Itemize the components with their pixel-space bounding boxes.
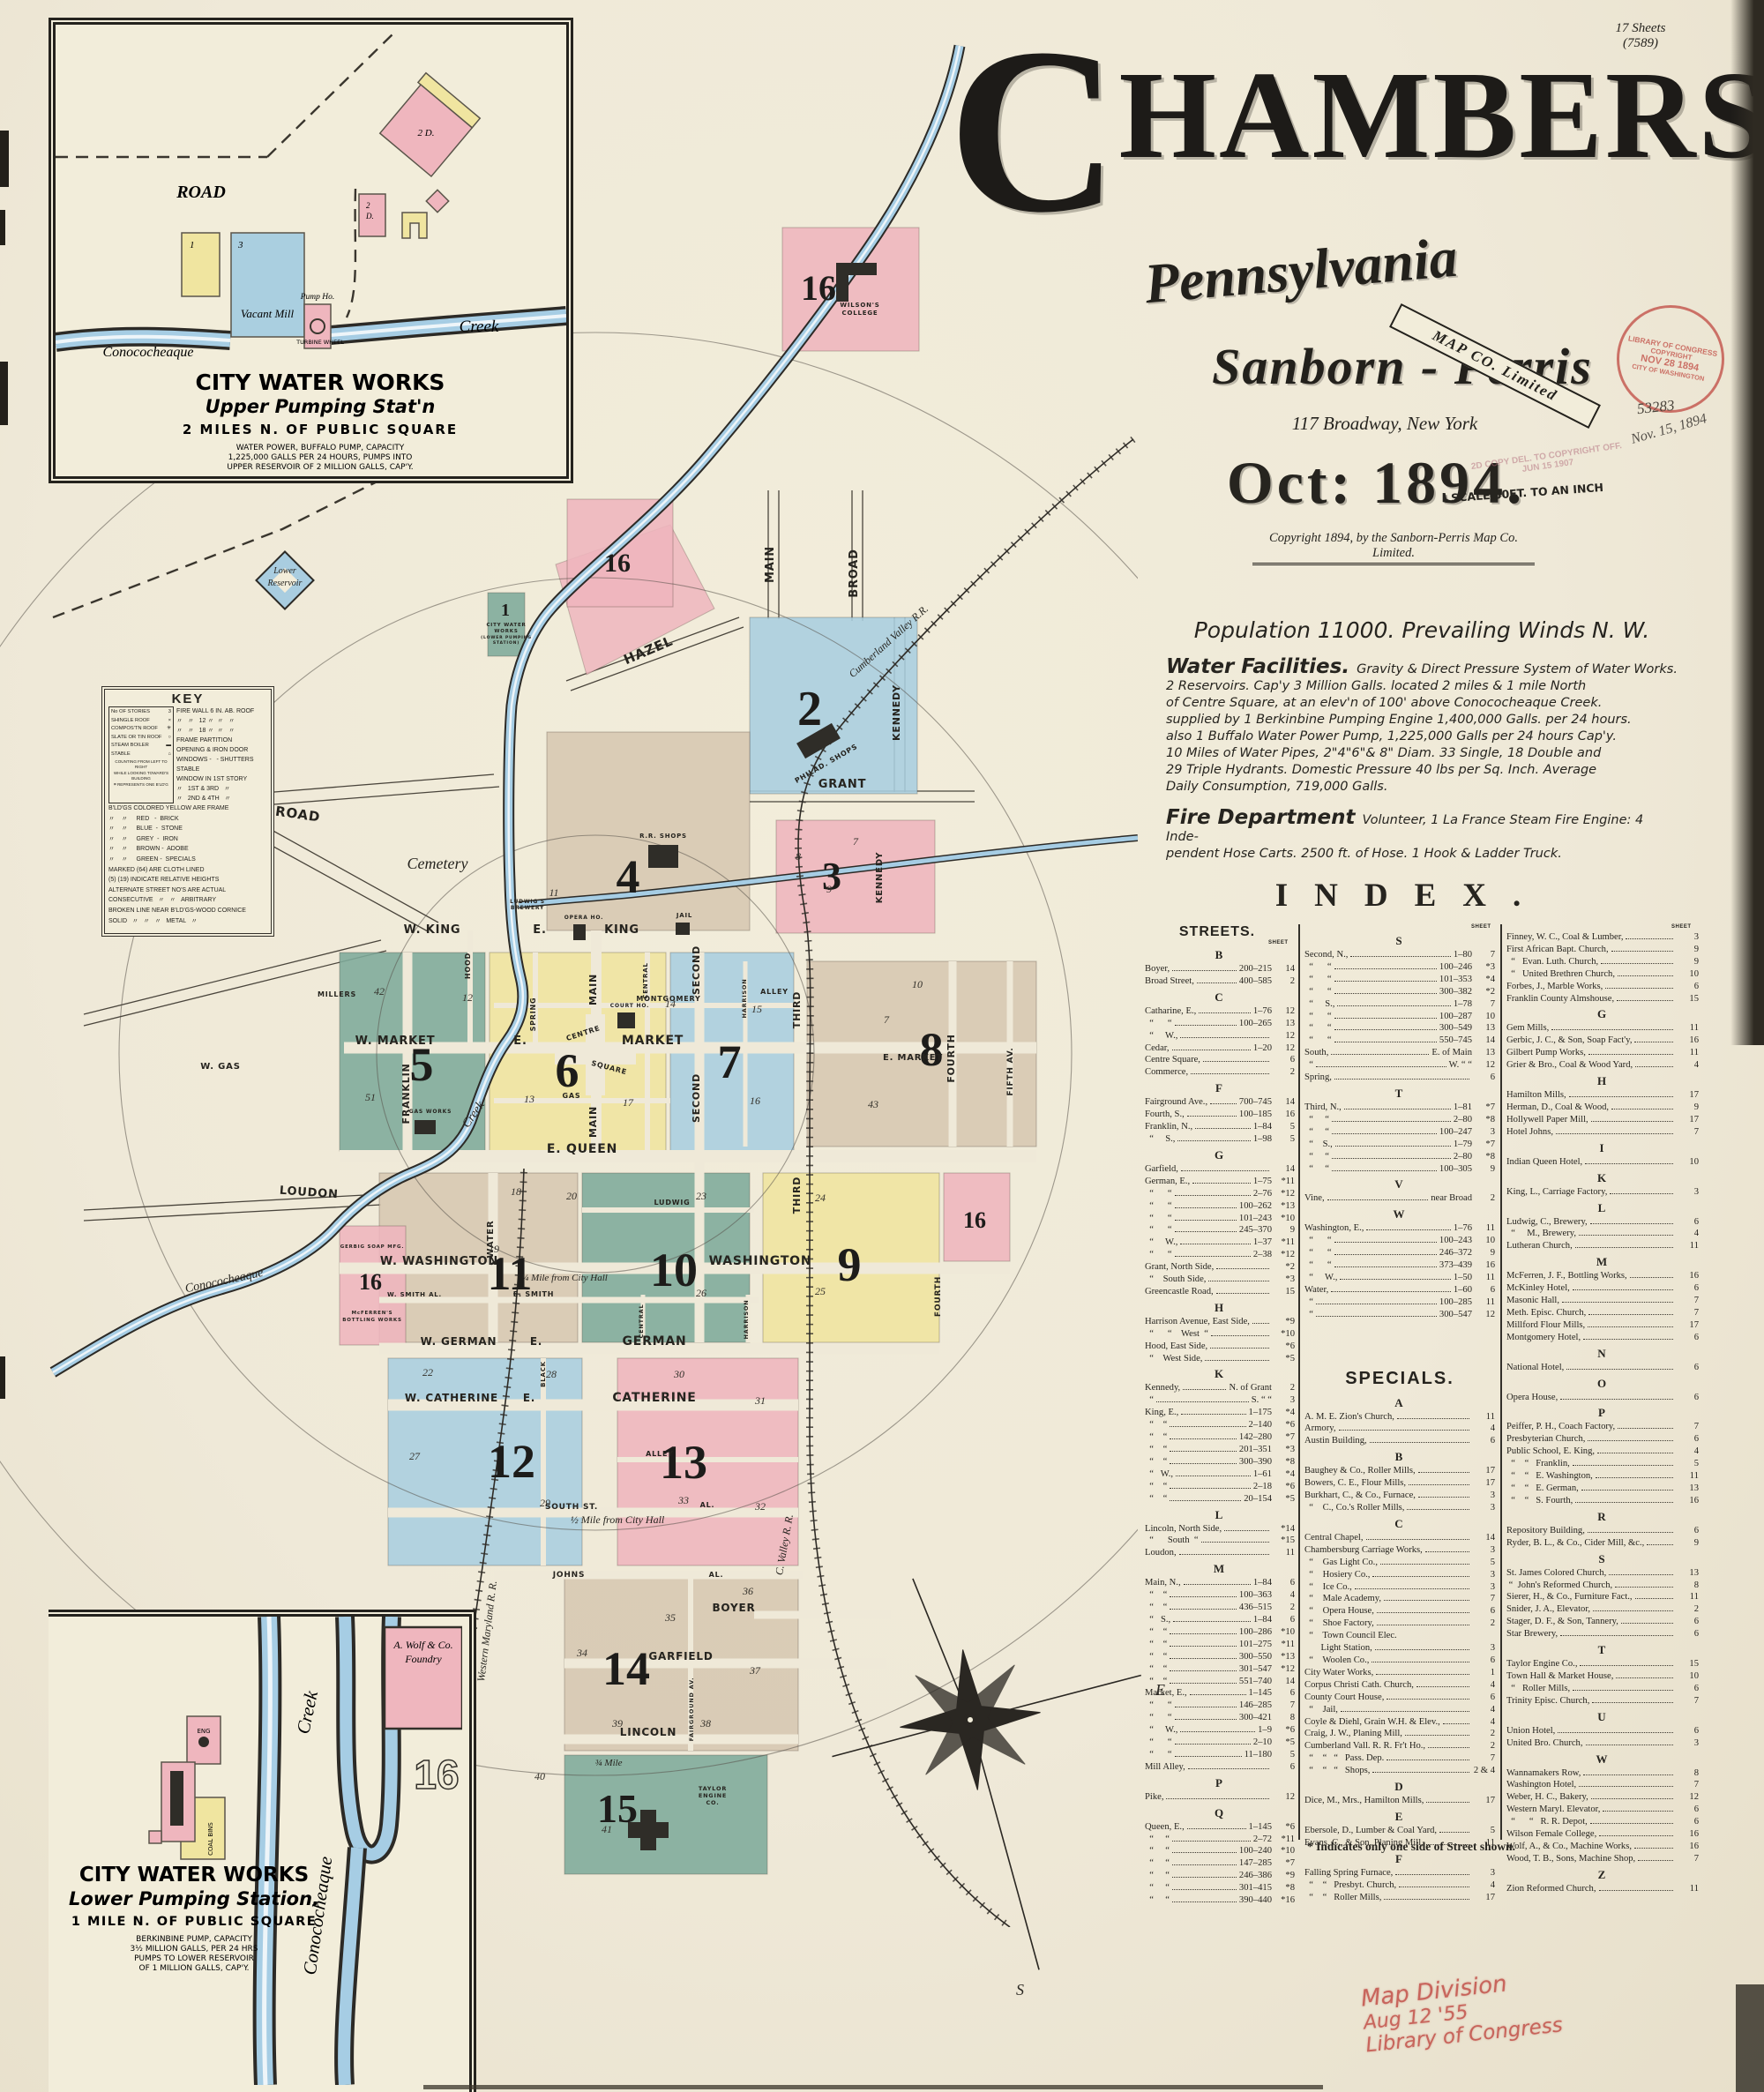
- handwritten-number: 53283: [1636, 397, 1675, 418]
- index-entry-sheet: 5: [1472, 1825, 1495, 1837]
- index-entry-sheet: 16: [1676, 1841, 1699, 1853]
- inset-title: CITY WATER WORKS: [196, 370, 445, 395]
- key-line: WINDOWS - - SHUTTERS: [176, 755, 254, 765]
- index-entry-sheet: 12: [1472, 1309, 1495, 1321]
- dotted-leader: [1203, 1061, 1269, 1062]
- dotted-leader: [1370, 1442, 1469, 1443]
- dotted-leader: [1560, 1399, 1673, 1400]
- dotted-leader: [1355, 1588, 1469, 1589]
- index-entry: Union Hotel,6: [1506, 1725, 1699, 1737]
- index-entry: Fairground Ave.,700–74514: [1145, 1096, 1295, 1109]
- water-facilities-line: supplied by 1 Berkinbine Pumping Engine …: [1166, 712, 1678, 728]
- index-entry-name: “ “: [1145, 1224, 1172, 1237]
- index-entry-name: Kennedy,: [1145, 1382, 1180, 1394]
- index-entry: “ “300–54913: [1304, 1022, 1495, 1035]
- index-entry-sheet: 12: [1272, 1791, 1295, 1804]
- key-line: 〃 〃 GREY - IRON: [108, 834, 267, 845]
- street-label-e-market: E. MARKET: [883, 1053, 943, 1063]
- index-entry-sheet: 13: [1472, 1022, 1495, 1035]
- dotted-leader: [1588, 1326, 1673, 1327]
- index-entry-sheet: 4: [1472, 1716, 1495, 1729]
- fire-department-line: pendent Hose Carts. 2500 ft. of Hose. 1 …: [1166, 846, 1678, 863]
- dotted-leader: [1210, 1348, 1269, 1349]
- index-entry-name: “ “: [1304, 961, 1332, 974]
- index-entry-name: “ “: [1304, 1126, 1329, 1139]
- street-label-w-gas: W. GAS: [200, 1062, 240, 1072]
- index-entry: Light Station,3: [1304, 1642, 1495, 1655]
- index-entry-range: 100–363: [1239, 1589, 1272, 1602]
- index-entry: Greencastle Road,15: [1145, 1286, 1295, 1298]
- index-entry: “ “ Presbyt. Church,4: [1304, 1879, 1495, 1892]
- index-entry: Finney, W. C., Coal & Lumber,3: [1506, 931, 1699, 944]
- index-entry-range: 1–20: [1253, 1042, 1272, 1055]
- dotted-leader: [1216, 1293, 1269, 1294]
- index-entry-name: A. M. E. Zion's Church,: [1304, 1411, 1394, 1423]
- index-entry-name: Forbes, J., Marble Works,: [1506, 981, 1603, 993]
- index-entry-name: Light Station,: [1304, 1642, 1372, 1655]
- dotted-leader: [1599, 1835, 1673, 1836]
- index-entry-sheet: 6: [1676, 1362, 1699, 1374]
- key-line: FIRE WALL 6 IN. AB. ROOF: [176, 706, 254, 716]
- street-label-johns: JOHNS: [552, 1571, 586, 1580]
- index-entry-range: 1–145: [1249, 1687, 1272, 1700]
- index-entry-name: St. James Colored Church,: [1506, 1567, 1606, 1580]
- index-entry: “ Jail,4: [1304, 1704, 1495, 1716]
- index-entry: Herman, D., Coal & Wood,9: [1506, 1102, 1699, 1114]
- street-label-third: THIRD: [791, 1177, 803, 1214]
- index-entry-name: “ “: [1304, 974, 1332, 986]
- index-entry-name: “ “: [1145, 1249, 1172, 1261]
- street-label-fifth-av-: FIFTH AV.: [1006, 1047, 1015, 1095]
- index-entry-name: Trinity Episc. Church,: [1506, 1695, 1589, 1707]
- street-label-market: MARKET: [622, 1034, 684, 1048]
- street-label-harrison: HARRISON: [741, 979, 748, 1019]
- index-entry-sheet: 13: [1676, 1483, 1699, 1495]
- dotted-leader: [1409, 1484, 1469, 1485]
- index-entry-name: “ “ “ Shops,: [1304, 1765, 1370, 1777]
- index-letter-header: W: [1304, 1207, 1495, 1222]
- index-entry: Trinity Episc. Church,7: [1506, 1695, 1699, 1707]
- index-entry: “ Opera House,6: [1304, 1605, 1495, 1618]
- dotted-leader: [1597, 1453, 1673, 1453]
- inset-subtitle: Lower Pumping Station.: [69, 1888, 319, 1909]
- street-label-franklin: FRANKLIN: [400, 1064, 412, 1124]
- street-label-second: SECOND: [691, 945, 702, 995]
- dotted-leader: [1593, 1610, 1673, 1611]
- index-entry-sheet: 11: [1676, 1591, 1699, 1603]
- title-rest: HAMBERSBURG: [1119, 45, 1764, 184]
- index-entry-sheet: 5: [1272, 1133, 1295, 1146]
- index-entry-name: Ryder, B. L., & Co., Cider Mill, &c.,: [1506, 1537, 1644, 1550]
- index-entry-name: “ W.,: [1145, 1237, 1177, 1249]
- index-entry-sheet: *3: [1472, 961, 1495, 974]
- index-entry-name: Central Chapel,: [1304, 1532, 1364, 1544]
- dotted-leader: [1180, 1731, 1255, 1732]
- index-entry-name: “ West Side,: [1145, 1353, 1202, 1365]
- index-entry-sheet: 13: [1472, 1047, 1495, 1059]
- index-entry: Water,1–606: [1304, 1284, 1495, 1296]
- index-entry-range: 300–547: [1439, 1309, 1472, 1321]
- key-line: ALTERNATE STREET NO'S ARE ACTUAL: [108, 885, 267, 896]
- index-entry-sheet: 4: [1472, 1704, 1495, 1716]
- index-entry: Hamilton Mills,17: [1506, 1089, 1699, 1102]
- index-entry: “ “2–80*8: [1304, 1151, 1495, 1163]
- index-entry-range: near Broad: [1431, 1192, 1472, 1205]
- poi-label-co-: CO.: [706, 1799, 719, 1806]
- water-facilities-line: 29 Triple Hydrants. Domestic Pressure 40…: [1166, 762, 1678, 779]
- block-number: 7: [884, 1013, 890, 1026]
- index-entry: “ Roller Mills,6: [1506, 1683, 1699, 1695]
- inset-note: PUMPS TO LOWER RESERVOIR: [134, 1954, 254, 1963]
- street-label-main: MAIN: [764, 546, 777, 583]
- index-entry-sheet: 6: [1676, 1216, 1699, 1229]
- dotted-leader: [1170, 1463, 1237, 1464]
- dotted-leader: [1344, 1109, 1451, 1110]
- index-entry: Repository Building,6: [1506, 1525, 1699, 1537]
- building-number: 2 D.: [418, 128, 435, 138]
- street-label-harrison: HARRISON: [743, 1300, 750, 1340]
- street-label-road: ROAD: [274, 803, 321, 826]
- index-entry-sheet: 7: [1472, 1593, 1495, 1605]
- district-number-9: 9: [838, 1238, 862, 1291]
- block-number: 20: [566, 1190, 577, 1202]
- inset-note: 1,225,000 GALLS PER 24 HOURS, PUMPS INTO: [228, 453, 413, 462]
- street-label-e-: E.: [533, 923, 546, 937]
- index-entry: “ “246–3729: [1304, 1247, 1495, 1259]
- index-entry-range: 2–140: [1249, 1419, 1272, 1431]
- index-entry-name: “ W.,: [1304, 1272, 1337, 1284]
- index-entry-name: Stager, D. F., & Son, Tannery,: [1506, 1616, 1618, 1628]
- index-entry-name: Garfield,: [1145, 1163, 1178, 1176]
- street-label-central: CENTRAL: [638, 1304, 645, 1339]
- block-number: 27: [409, 1450, 421, 1462]
- index-entry-name: “: [1145, 1394, 1154, 1407]
- index-footnote: * Indicates only one side of Street show…: [1208, 1840, 1614, 1854]
- index-letter-header: T: [1506, 1643, 1699, 1657]
- key-line: STABLE: [176, 765, 254, 774]
- water-facilities-label: Water Facilities.: [1166, 655, 1357, 678]
- dotted-leader: [1426, 1802, 1469, 1803]
- map-key: KEY No OF STORIES3SHINGLE ROOF×COMPOS'TN…: [101, 686, 274, 937]
- index-entry-name: “ “ “ Pass. Dep.: [1304, 1752, 1384, 1765]
- index-entry: Washington Hotel,7: [1506, 1779, 1699, 1791]
- index-entry-sheet: 7: [1676, 1295, 1699, 1307]
- dotted-leader: [1334, 1254, 1437, 1255]
- index-entry-name: Taylor Engine Co.,: [1506, 1658, 1577, 1670]
- key-symbol-note: COUNTING FROM LEFT TO RIGHT: [111, 759, 171, 771]
- index-entry: Fourth, S.,100–18516: [1145, 1109, 1295, 1121]
- water-facilities-paragraph: Water Facilities. Gravity & Direct Press…: [1166, 655, 1678, 796]
- index-entry-sheet: 9: [1472, 1163, 1495, 1176]
- poi-label-brewery: BREWERY: [511, 905, 544, 911]
- building-number: D.: [365, 212, 374, 220]
- dotted-leader: [1316, 1304, 1437, 1304]
- index-entry: Masonic Hall,7: [1506, 1295, 1699, 1307]
- index-entry-sheet: 6: [1272, 1761, 1295, 1774]
- index-entry-name: Herman, D., Coal & Wood,: [1506, 1102, 1609, 1114]
- index-entry-range: 100–286: [1239, 1626, 1272, 1639]
- index-entry: “ “20–154*5: [1145, 1493, 1295, 1505]
- index-entry-name: “ Town Council Elec.: [1304, 1630, 1397, 1642]
- index-entry-sheet: 5: [1676, 1458, 1699, 1470]
- block-number: 42: [374, 985, 385, 997]
- index-entry-name: “ Gas Light Co.,: [1304, 1557, 1378, 1569]
- index-entry-sheet: *8: [1472, 1151, 1495, 1163]
- dotted-leader: [1252, 1323, 1269, 1324]
- block-number: 17: [623, 1096, 634, 1109]
- index-entry-range: 100–265: [1239, 1018, 1272, 1030]
- dotted-leader: [1418, 1497, 1469, 1498]
- index-entry-sheet: 7: [1676, 1421, 1699, 1433]
- street-label-central: CENTRAL: [642, 962, 649, 998]
- specials-header: SPECIALS.: [1304, 1369, 1495, 1389]
- index-entry: Gerbic, J. C., & Son, Soap Fact'y,16: [1506, 1035, 1699, 1047]
- index-entry-sheet: 2: [1472, 1618, 1495, 1630]
- index-entry-sheet: *4: [1272, 1468, 1295, 1481]
- street-label-w-market: W. MARKET: [355, 1035, 436, 1048]
- key-line: 〃 〃 BLUE - STONE: [108, 824, 267, 834]
- street-label-w-catherine: W. CATHERINE: [405, 1392, 498, 1404]
- index-entry: Presbyterian Church,6: [1506, 1433, 1699, 1446]
- index-entry-name: Hamilton Mills,: [1506, 1089, 1566, 1102]
- index-entry: “ “201–351*3: [1145, 1444, 1295, 1456]
- index-entry: Washington, E.,1–7611: [1304, 1222, 1495, 1235]
- index-entry: “ “100–24310: [1304, 1235, 1495, 1247]
- pump-house-label: Pump Ho.: [300, 293, 335, 302]
- district-number-8: 8: [920, 1023, 944, 1076]
- index-entry-range: 1–50: [1454, 1272, 1472, 1284]
- index-entry-range: 100–285: [1439, 1296, 1472, 1309]
- index-entry-range: 390–440: [1239, 1894, 1272, 1907]
- index-entry: “ South “*15: [1145, 1535, 1295, 1547]
- index-entry: A. M. E. Zion's Church,11: [1304, 1411, 1495, 1423]
- index-entry-name: Franklin County Almshouse,: [1506, 993, 1614, 1005]
- index-entry-name: Washington, E.,: [1304, 1222, 1364, 1235]
- index-entry-sheet: 6: [1676, 1525, 1699, 1537]
- index-entry-sheet: 1: [1472, 1667, 1495, 1679]
- dotted-leader: [1599, 1890, 1674, 1891]
- index-entry-sheet: 4: [1472, 1879, 1495, 1892]
- index-entry-range: 200–215: [1239, 963, 1272, 975]
- index-entry-sheet: 6: [1272, 1687, 1295, 1700]
- index-entry-name: Weber, H. C., Bakery,: [1506, 1791, 1588, 1804]
- dotted-leader: [1581, 1490, 1673, 1491]
- index-entry-range: 2–76: [1253, 1188, 1272, 1200]
- index-entry: Cumberland Vall. R. R. Fr't Ho.,2: [1304, 1740, 1495, 1752]
- dotted-leader: [1175, 1195, 1251, 1196]
- street-label-millers: MILLERS: [318, 990, 356, 998]
- index-entry-range: 1–84: [1253, 1614, 1272, 1626]
- index-entry-name: United Bro. Church,: [1506, 1737, 1583, 1750]
- district-number-6: 6: [556, 1044, 579, 1097]
- index-entry-range: 700–745: [1239, 1096, 1272, 1109]
- index-entry: Lincoln, North Side,*14: [1145, 1523, 1295, 1535]
- dotted-leader: [1638, 1860, 1673, 1861]
- street-label-kennedy: KENNEDY: [891, 684, 902, 741]
- index-entry-name: Lutheran Church,: [1506, 1240, 1573, 1252]
- index-entry-sheet: *2: [1472, 986, 1495, 998]
- index-entry-name: Centre Square,: [1145, 1054, 1200, 1066]
- index-entry-sheet: *12: [1272, 1188, 1295, 1200]
- index-entry-name: Wannamakers Row,: [1506, 1767, 1581, 1780]
- index-entry: “ “ Roller Mills,17: [1304, 1892, 1495, 1904]
- dotted-leader: [1621, 1623, 1673, 1624]
- key-symbol-row: No OF STORIES3: [111, 708, 171, 717]
- index-entry-name: “ “: [1304, 1151, 1329, 1163]
- index-entry-name: Second, N.,: [1304, 949, 1348, 961]
- index-letter-header: M: [1506, 1255, 1699, 1269]
- population-line: Population 11000. Prevailing Winds N. W.: [1166, 617, 1678, 643]
- street-label-king: KING: [604, 923, 639, 937]
- index-entry-range: 101–243: [1239, 1213, 1272, 1225]
- index-entry-sheet: 6: [1676, 1616, 1699, 1628]
- index-entry-sheet: 17: [1472, 1477, 1495, 1490]
- index-entry-name: “ W.,: [1145, 1468, 1173, 1481]
- index-entry-name: Indian Queen Hotel,: [1506, 1156, 1582, 1169]
- index-entry-range: 1–37: [1253, 1237, 1272, 1249]
- index-entry: National Hotel,6: [1506, 1362, 1699, 1374]
- dotted-leader: [1187, 1828, 1246, 1829]
- index-entry-sheet: *12: [1272, 1249, 1295, 1261]
- index-entry: “ S.,1–79*7: [1304, 1139, 1495, 1151]
- index-entry: Broad Street,400–5852: [1145, 975, 1295, 988]
- block-number: 26: [696, 1287, 706, 1299]
- street-label-alley: ALLEY: [760, 988, 789, 996]
- index-entry-sheet: 17: [1472, 1795, 1495, 1807]
- dotted-leader: [1573, 1289, 1673, 1290]
- block-number: 18: [511, 1185, 521, 1198]
- index-entry-range: 100–287: [1439, 1011, 1472, 1023]
- index-entry-sheet: *5: [1272, 1353, 1295, 1365]
- index-entry-name: “ “: [1304, 1114, 1329, 1126]
- index-letter-header: G: [1506, 1007, 1699, 1021]
- index-entry-sheet: 3: [1472, 1490, 1495, 1502]
- block-number: 15: [751, 1003, 762, 1015]
- sheet-column-header: SHEET: [1671, 924, 1692, 930]
- dotted-leader: [1579, 1786, 1673, 1787]
- dotted-leader: [1439, 1832, 1469, 1833]
- dotted-leader: [1592, 1702, 1673, 1703]
- street-label-e-smith: E. SMITH: [513, 1290, 555, 1298]
- index-entry-sheet: 6: [1472, 1435, 1495, 1447]
- index-entry-name: “ “ Presbyt. Church,: [1304, 1879, 1396, 1892]
- index-entry-sheet: *13: [1272, 1200, 1295, 1213]
- dotted-leader: [1334, 1042, 1437, 1042]
- index-entry: “ Gas Light Co.,5: [1304, 1557, 1495, 1569]
- fire-department-label: Fire Department: [1166, 806, 1363, 829]
- index-entry-name: Ebersole, D., Lumber & Coal Yard,: [1304, 1825, 1437, 1837]
- index-entry: Chambersburg Carriage Works,3: [1304, 1544, 1495, 1557]
- index-entry: Town Hall & Market House,10: [1506, 1670, 1699, 1683]
- dotted-leader: [1179, 1554, 1269, 1555]
- publisher-address: 117 Broadway, New York: [1252, 413, 1517, 435]
- water-facilities-line: 2 Reservoirs. Cap'y 3 Million Galls. loc…: [1166, 678, 1678, 695]
- street-label-third: THIRD: [791, 991, 803, 1028]
- building-number: 1: [190, 240, 195, 250]
- index-entry-sheet: 7: [1272, 1700, 1295, 1712]
- dotted-leader: [1341, 1711, 1469, 1712]
- index-entry-sheet: 16: [1676, 1035, 1699, 1047]
- index-letter-header: T: [1304, 1087, 1495, 1101]
- sanborn-map-sheet: 16216134567891011161612131415HAZELMAINBR…: [0, 0, 1764, 2092]
- vacant-mill-label: Vacant Mill: [241, 307, 295, 320]
- index-entry: Hood, East Side,*6: [1145, 1341, 1295, 1353]
- index-entry-name: National Hotel,: [1506, 1362, 1564, 1374]
- index-entry: “ “ “ Shops,2 & 4: [1304, 1765, 1495, 1777]
- dotted-leader: [1611, 1109, 1673, 1110]
- index-entry-sheet: *10: [1272, 1626, 1295, 1639]
- key-line: 〃 〃 BROWN - ADOBE: [108, 844, 267, 855]
- index-entry: Hollywell Paper Mill,17: [1506, 1114, 1699, 1126]
- index-entry-name: “ “ E. Washington,: [1506, 1470, 1593, 1483]
- index-entry: Commerce,2: [1145, 1066, 1295, 1079]
- dotted-leader: [1556, 1133, 1673, 1134]
- index-entry: “ Shoe Factory,2: [1304, 1618, 1495, 1630]
- index-entry-sheet: *2: [1272, 1261, 1295, 1274]
- index-entry: Dice, M., Mrs., Hamilton Mills,17: [1304, 1795, 1495, 1807]
- index-letter-header: A: [1304, 1396, 1495, 1410]
- index-entry-range: 2–80: [1454, 1151, 1472, 1163]
- block-number: 31: [754, 1394, 766, 1407]
- index-entry-sheet: 11: [1676, 1022, 1699, 1035]
- index-entry-name: Cumberland Vall. R. R. Fr't Ho.,: [1304, 1740, 1425, 1752]
- index-entry: Catharine, E.,1–7612: [1145, 1005, 1295, 1018]
- index-entry: Second, N.,1–807: [1304, 949, 1495, 961]
- index-entry-range: 300–550: [1239, 1651, 1272, 1663]
- index-entry-name: “ “: [1304, 1235, 1332, 1247]
- index-entry-range: 11–180: [1245, 1749, 1272, 1761]
- index-entry-range: 100–185: [1239, 1109, 1272, 1121]
- index-column-divider: [1500, 924, 1502, 1840]
- index-entry-sheet: 3: [1676, 1737, 1699, 1750]
- street-label-w-smith-al-: W. SMITH AL.: [387, 1291, 442, 1298]
- index-entry-range: 300–382: [1439, 986, 1472, 998]
- index-entry-sheet: 17: [1472, 1892, 1495, 1904]
- index-entry: “ Woolen Co.,6: [1304, 1655, 1495, 1667]
- index-entry-sheet: 8: [1272, 1712, 1295, 1724]
- dotted-leader: [1586, 1745, 1673, 1745]
- dotted-leader: [1339, 1430, 1469, 1431]
- state-label: Pennsylvania: [1096, 220, 1506, 321]
- poi-label-college: COLLEGE: [842, 310, 878, 317]
- index-entry: Centre Square,6: [1145, 1054, 1295, 1066]
- index-entry-name: Hood, East Side,: [1145, 1341, 1207, 1353]
- water-facilities-line: of Centre Square, at an elev'n of 100' a…: [1166, 695, 1678, 712]
- index-entry-sheet: 9: [1676, 1102, 1699, 1114]
- index-letter-header: D: [1304, 1780, 1495, 1794]
- index-entry-sheet: 3: [1472, 1581, 1495, 1594]
- street-label--mile-from-city-hall: ½ Mile from City Hall: [571, 1513, 665, 1526]
- index-entry: “ “2–38*12: [1145, 1249, 1295, 1261]
- page-edge: [423, 2085, 1323, 2089]
- dotted-leader: [1156, 1401, 1249, 1402]
- district-number-7: 7: [718, 1035, 742, 1088]
- index-entry-name: City Water Works,: [1304, 1667, 1373, 1679]
- dotted-leader: [1387, 1699, 1469, 1700]
- index-entry-sheet: 10: [1472, 1235, 1495, 1247]
- index-entry-name: Catharine, E.,: [1145, 1005, 1196, 1018]
- dotted-leader: [1591, 1121, 1673, 1122]
- index-entry: McKinley Hotel,6: [1506, 1282, 1699, 1295]
- index-entry: Snider, J. A., Elevator,2: [1506, 1603, 1699, 1616]
- block-number: 22: [422, 1366, 433, 1378]
- index-entry-name: Austin Building,: [1304, 1435, 1367, 1447]
- dotted-leader: [1334, 1018, 1437, 1019]
- dotted-leader: [1560, 1635, 1673, 1636]
- street-label-washington: WASHINGTON: [709, 1254, 812, 1268]
- index-entry-name: Vine,: [1304, 1192, 1325, 1205]
- street-label-fourth: FOURTH: [946, 1034, 957, 1082]
